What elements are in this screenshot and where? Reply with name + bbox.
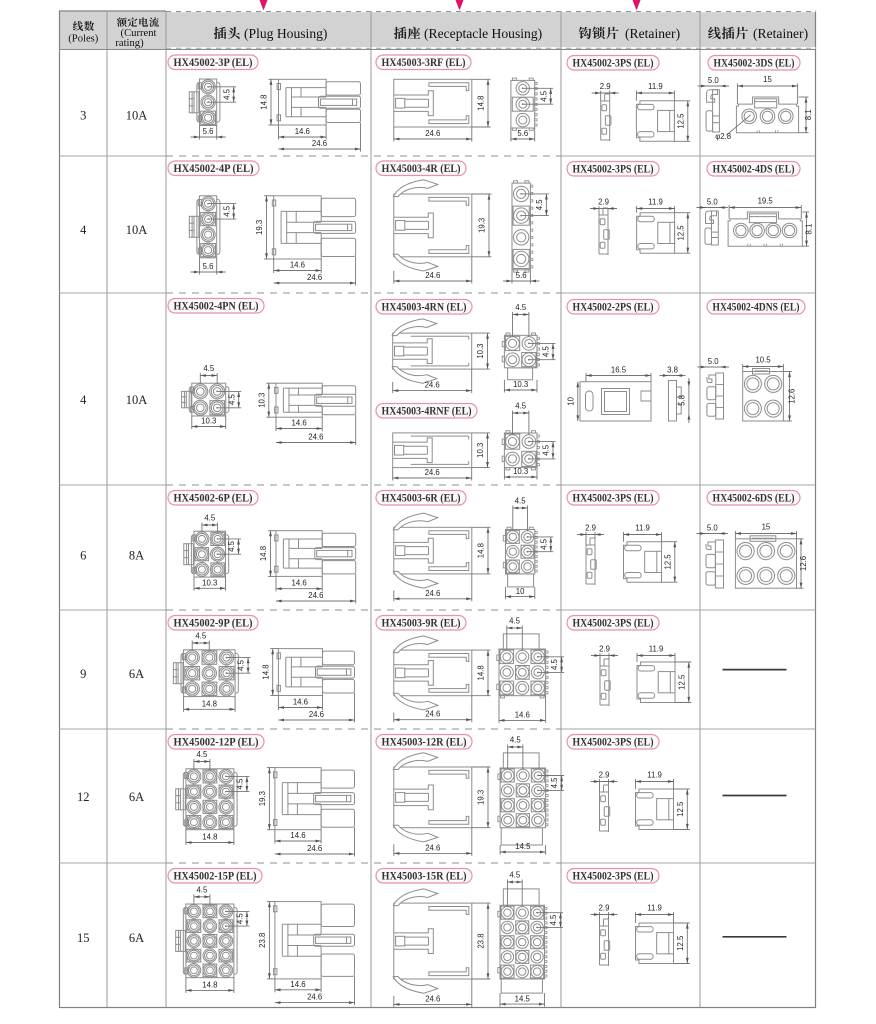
- svg-text:5.6: 5.6: [203, 262, 214, 271]
- svg-text:4.5: 4.5: [509, 871, 521, 880]
- svg-text:4.5: 4.5: [227, 540, 236, 552]
- svg-text:12.6: 12.6: [787, 389, 796, 404]
- svg-text:11.9: 11.9: [647, 771, 662, 780]
- svg-text:14.8: 14.8: [477, 665, 486, 680]
- svg-text:11.9: 11.9: [648, 82, 663, 91]
- svg-text:10: 10: [566, 396, 575, 405]
- svg-text:4.5: 4.5: [539, 538, 548, 550]
- svg-text:14.8: 14.8: [260, 95, 269, 110]
- svg-text:φ2.8: φ2.8: [715, 132, 731, 141]
- svg-text:14.6: 14.6: [292, 419, 307, 428]
- svg-text:14.6: 14.6: [295, 127, 310, 136]
- svg-text:4.5: 4.5: [535, 199, 544, 211]
- svg-text:HX45003-12R (EL): HX45003-12R (EL): [382, 735, 467, 749]
- svg-text:14.8: 14.8: [202, 700, 217, 709]
- svg-text:4.5: 4.5: [539, 90, 548, 102]
- svg-text:4.5: 4.5: [542, 345, 551, 357]
- svg-text:15: 15: [77, 931, 90, 945]
- svg-text:6A: 6A: [129, 790, 144, 804]
- svg-text:24.6: 24.6: [308, 433, 323, 442]
- svg-text:4: 4: [80, 223, 87, 237]
- svg-text:24.6: 24.6: [312, 139, 327, 148]
- svg-text:19.3: 19.3: [255, 220, 264, 235]
- svg-text:5.6: 5.6: [203, 127, 214, 136]
- svg-text:24.6: 24.6: [307, 993, 322, 1002]
- svg-text:(Retainer): (Retainer): [753, 26, 808, 42]
- svg-text:4.5: 4.5: [515, 497, 527, 506]
- svg-text:HX45002-4DS (EL): HX45002-4DS (EL): [713, 162, 795, 176]
- svg-text:4.5: 4.5: [195, 632, 207, 641]
- svg-text:14.6: 14.6: [292, 579, 307, 588]
- svg-text:4.5: 4.5: [236, 913, 245, 925]
- svg-text:HX45003-3RF (EL): HX45003-3RF (EL): [382, 55, 466, 69]
- svg-text:24.6: 24.6: [425, 710, 440, 719]
- svg-text:4.5: 4.5: [196, 885, 208, 894]
- svg-text:4.5: 4.5: [204, 514, 216, 523]
- svg-text:4.5: 4.5: [549, 914, 558, 926]
- svg-text:HX45002-3PS (EL): HX45002-3PS (EL): [573, 56, 654, 70]
- svg-text:5.8: 5.8: [678, 395, 687, 406]
- svg-text:19.3: 19.3: [258, 791, 267, 806]
- svg-text:HX45003-6R (EL): HX45003-6R (EL): [382, 491, 461, 505]
- svg-text:11.9: 11.9: [635, 524, 650, 533]
- svg-text:6: 6: [80, 549, 86, 563]
- svg-text:HX45003-4RNF (EL): HX45003-4RNF (EL): [382, 404, 472, 418]
- svg-text:4.5: 4.5: [550, 658, 559, 670]
- svg-text:(Poles): (Poles): [68, 34, 98, 45]
- svg-text:19.3: 19.3: [477, 790, 486, 805]
- svg-text:10.3: 10.3: [513, 380, 528, 389]
- svg-text:14.6: 14.6: [293, 698, 308, 707]
- svg-text:rating): rating): [115, 38, 144, 49]
- svg-text:14.5: 14.5: [515, 842, 531, 851]
- svg-text:10A: 10A: [126, 223, 148, 237]
- svg-text:HX45003-4RN (EL): HX45003-4RN (EL): [382, 300, 467, 314]
- svg-text:HX45003-15R (EL): HX45003-15R (EL): [382, 869, 467, 883]
- svg-text:24.6: 24.6: [425, 381, 440, 390]
- svg-text:5.0: 5.0: [707, 198, 719, 207]
- svg-text:14.8: 14.8: [259, 546, 268, 561]
- svg-text:10.3: 10.3: [257, 393, 266, 408]
- svg-text:HX45002-4DNS (EL): HX45002-4DNS (EL): [713, 300, 800, 314]
- svg-text:14.8: 14.8: [477, 96, 486, 111]
- svg-text:10.3: 10.3: [476, 443, 485, 458]
- svg-text:4.5: 4.5: [515, 402, 527, 411]
- svg-text:HX45002-6P (EL): HX45002-6P (EL): [174, 491, 253, 505]
- svg-text:HX45002-3PS (EL): HX45002-3PS (EL): [573, 869, 654, 883]
- svg-text:4.5: 4.5: [542, 444, 551, 456]
- svg-text:14.6: 14.6: [290, 831, 305, 840]
- svg-text:10.3: 10.3: [513, 467, 528, 476]
- svg-text:19.5: 19.5: [758, 197, 774, 206]
- svg-text:16.5: 16.5: [611, 366, 627, 375]
- svg-text:HX45002-9P (EL): HX45002-9P (EL): [174, 616, 253, 630]
- svg-text:12.5: 12.5: [676, 225, 685, 241]
- svg-text:11.9: 11.9: [648, 198, 663, 207]
- svg-text:HX45002-4P (EL): HX45002-4P (EL): [174, 161, 254, 175]
- svg-text:4.5: 4.5: [236, 778, 245, 790]
- svg-text:24.6: 24.6: [425, 994, 440, 1003]
- svg-text:HX45002-3PS (EL): HX45002-3PS (EL): [573, 616, 654, 630]
- svg-text:8.1: 8.1: [804, 224, 813, 235]
- svg-text:HX45002-15P (EL): HX45002-15P (EL): [174, 869, 257, 883]
- svg-text:14.6: 14.6: [515, 711, 530, 720]
- svg-text:12.5: 12.5: [676, 935, 685, 951]
- svg-text:HX45002-6DS (EL): HX45002-6DS (EL): [713, 491, 795, 505]
- svg-text:24.6: 24.6: [425, 271, 440, 280]
- svg-text:6A: 6A: [129, 667, 144, 681]
- svg-text:4.5: 4.5: [227, 394, 236, 406]
- svg-text:10.3: 10.3: [201, 417, 216, 426]
- svg-text:24.6: 24.6: [425, 129, 440, 138]
- svg-text:23.8: 23.8: [258, 933, 267, 948]
- svg-text:6A: 6A: [129, 931, 144, 945]
- svg-text:24.6: 24.6: [425, 843, 440, 852]
- svg-text:8A: 8A: [129, 549, 144, 563]
- svg-text:4.5: 4.5: [510, 736, 522, 745]
- svg-text:HX45003-4R (EL): HX45003-4R (EL): [382, 161, 461, 175]
- svg-text:12.5: 12.5: [676, 801, 685, 817]
- svg-text:4.5: 4.5: [222, 88, 231, 100]
- svg-text:14.8: 14.8: [477, 543, 486, 558]
- svg-text:11.9: 11.9: [649, 645, 664, 654]
- svg-text:14.8: 14.8: [261, 664, 270, 679]
- svg-text:24.6: 24.6: [425, 589, 440, 598]
- svg-text:4.5: 4.5: [515, 303, 527, 312]
- svg-text:14.6: 14.6: [290, 980, 305, 989]
- svg-text:5.0: 5.0: [708, 357, 720, 366]
- svg-text:14.8: 14.8: [202, 981, 217, 990]
- svg-text:HX45002-3DS (EL): HX45002-3DS (EL): [714, 56, 795, 70]
- svg-text:15: 15: [762, 523, 771, 532]
- svg-text:HX45002-3PS (EL): HX45002-3PS (EL): [573, 162, 654, 176]
- svg-text:2.9: 2.9: [599, 771, 610, 780]
- svg-text:14.5: 14.5: [515, 994, 531, 1003]
- svg-text:4.5: 4.5: [550, 777, 559, 789]
- svg-text:HX45002-12P (EL): HX45002-12P (EL): [174, 735, 259, 749]
- svg-text:12.5: 12.5: [677, 674, 686, 690]
- svg-text:4.5: 4.5: [509, 617, 521, 626]
- svg-text:4.5: 4.5: [222, 205, 231, 217]
- svg-text:24.6: 24.6: [307, 273, 322, 282]
- svg-text:10.3: 10.3: [202, 579, 217, 588]
- svg-text:HX45002-2PS (EL): HX45002-2PS (EL): [573, 300, 654, 314]
- svg-text:5.0: 5.0: [708, 76, 720, 85]
- svg-text:14.6: 14.6: [290, 261, 305, 270]
- svg-text:12.5: 12.5: [663, 554, 672, 570]
- svg-text:24.6: 24.6: [307, 844, 322, 853]
- svg-text:10.5: 10.5: [755, 356, 771, 365]
- svg-text:23.8: 23.8: [477, 933, 486, 948]
- svg-text:10A: 10A: [126, 393, 148, 407]
- svg-text:24.6: 24.6: [425, 468, 440, 477]
- svg-text:24.6: 24.6: [308, 591, 323, 600]
- svg-text:5.6: 5.6: [516, 271, 527, 280]
- svg-text:2.9: 2.9: [598, 198, 609, 207]
- svg-text:10: 10: [516, 587, 525, 596]
- svg-text:HX45002-3PS (EL): HX45002-3PS (EL): [573, 491, 654, 505]
- svg-text:2.9: 2.9: [585, 524, 596, 533]
- svg-text:4: 4: [80, 393, 87, 407]
- svg-text:2.9: 2.9: [599, 645, 610, 654]
- svg-text:4.5: 4.5: [203, 364, 215, 373]
- svg-text:12.5: 12.5: [676, 113, 685, 129]
- svg-text:2.9: 2.9: [600, 82, 611, 91]
- svg-text:11.9: 11.9: [647, 904, 662, 913]
- svg-text:10A: 10A: [126, 109, 148, 123]
- svg-text:5.0: 5.0: [707, 524, 719, 533]
- svg-text:HX45002-3PS (EL): HX45002-3PS (EL): [573, 735, 654, 749]
- svg-text:3.8: 3.8: [667, 366, 678, 375]
- svg-text:12.6: 12.6: [799, 556, 808, 571]
- svg-text:8.1: 8.1: [804, 109, 813, 120]
- svg-text:12: 12: [77, 790, 90, 804]
- svg-text:HX45002-3P (EL): HX45002-3P (EL): [174, 55, 253, 69]
- svg-text:3: 3: [80, 109, 86, 123]
- svg-text:(Receptacle Housing): (Receptacle Housing): [424, 26, 542, 42]
- svg-text:9: 9: [80, 667, 86, 681]
- svg-text:HX45002-4PN (EL): HX45002-4PN (EL): [174, 299, 259, 313]
- svg-text:14.8: 14.8: [202, 833, 217, 842]
- svg-text:HX45003-9R (EL): HX45003-9R (EL): [382, 616, 461, 630]
- svg-text:15: 15: [763, 75, 772, 84]
- svg-text:5.6: 5.6: [517, 129, 528, 138]
- svg-text:(Retainer): (Retainer): [625, 26, 680, 42]
- svg-text:2.9: 2.9: [599, 904, 610, 913]
- svg-text:4.5: 4.5: [237, 659, 246, 671]
- svg-text:24.6: 24.6: [309, 710, 324, 719]
- svg-text:10.3: 10.3: [476, 344, 485, 359]
- svg-text:(Plug Housing): (Plug Housing): [244, 26, 327, 42]
- svg-text:19.3: 19.3: [478, 218, 487, 233]
- svg-text:4.5: 4.5: [196, 750, 208, 759]
